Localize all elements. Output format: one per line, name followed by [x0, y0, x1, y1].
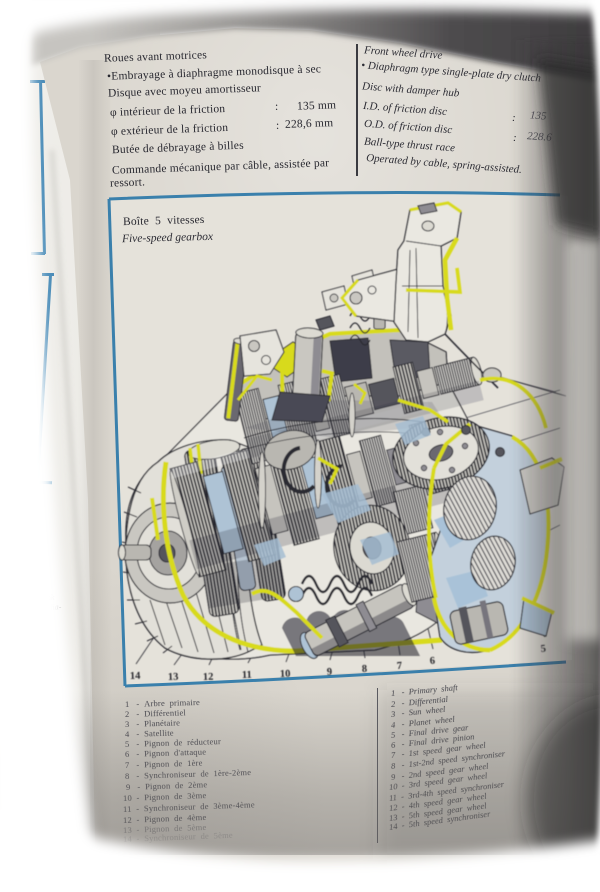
- svg-text:14: 14: [130, 671, 142, 682]
- svg-text:11: 11: [242, 670, 252, 681]
- svg-text:9: 9: [327, 667, 333, 678]
- svg-text:6: 6: [429, 656, 435, 667]
- svg-text:7: 7: [396, 661, 402, 672]
- svg-text:8: 8: [362, 664, 368, 675]
- svg-text:12: 12: [203, 672, 214, 683]
- svg-text:10: 10: [280, 669, 291, 680]
- svg-text:13: 13: [168, 672, 179, 683]
